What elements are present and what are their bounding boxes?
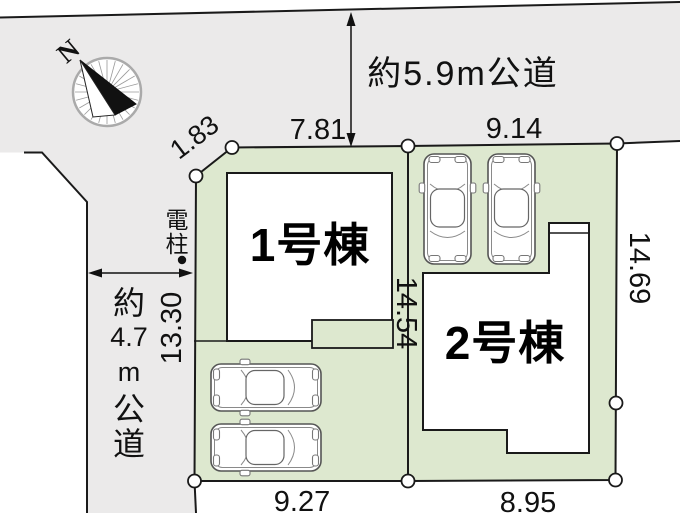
road-left-label-char: 4.7: [110, 322, 148, 352]
road-left-label-char: 約: [113, 285, 145, 321]
building-2-label: 2号棟: [445, 317, 566, 369]
dim-lot1-left: 13.30: [156, 292, 188, 365]
dim-lot2-top: 9.14: [486, 113, 542, 145]
car-icon: [419, 154, 476, 264]
road-left-boundary: [24, 153, 87, 514]
dim-lot1-bottom: 9.27: [274, 486, 330, 518]
boundary-marker: [611, 137, 624, 150]
car-icon: [483, 154, 540, 264]
car-icon: [211, 359, 321, 416]
dim-lot1-top: 7.81: [290, 114, 346, 146]
boundary-marker: [190, 170, 203, 183]
utility-pole: 電 柱: [166, 207, 189, 264]
utility-pole-label-char: 柱: [166, 231, 189, 257]
dim-center: 14.54: [390, 277, 422, 350]
road-left-label-char: m: [118, 357, 141, 387]
boundary-marker: [188, 475, 201, 488]
boundary-marker: [402, 140, 415, 153]
dim-lot2-bottom: 8.95: [500, 487, 556, 519]
road-left-label-char: 公: [113, 391, 145, 427]
site-plan-drawing: 1号棟 2号棟 電 柱: [0, 0, 680, 520]
utility-pole-label-char: 電: [166, 207, 189, 233]
road-left-label-char: 道: [113, 426, 145, 462]
utility-pole-dot: [178, 256, 186, 264]
boundary-marker: [402, 475, 415, 488]
dim-lot2-right: 14.69: [623, 232, 655, 305]
site-plan-page: 1号棟 2号棟 電 柱: [0, 0, 680, 520]
boundary-marker: [226, 141, 239, 154]
boundary-marker: [609, 474, 622, 487]
building-1-label: 1号棟: [250, 219, 371, 271]
road-top-label: 約5.9m公道: [367, 55, 559, 93]
car-icon: [211, 419, 321, 476]
building-1-porch: [312, 320, 393, 348]
boundary-marker: [610, 397, 623, 410]
